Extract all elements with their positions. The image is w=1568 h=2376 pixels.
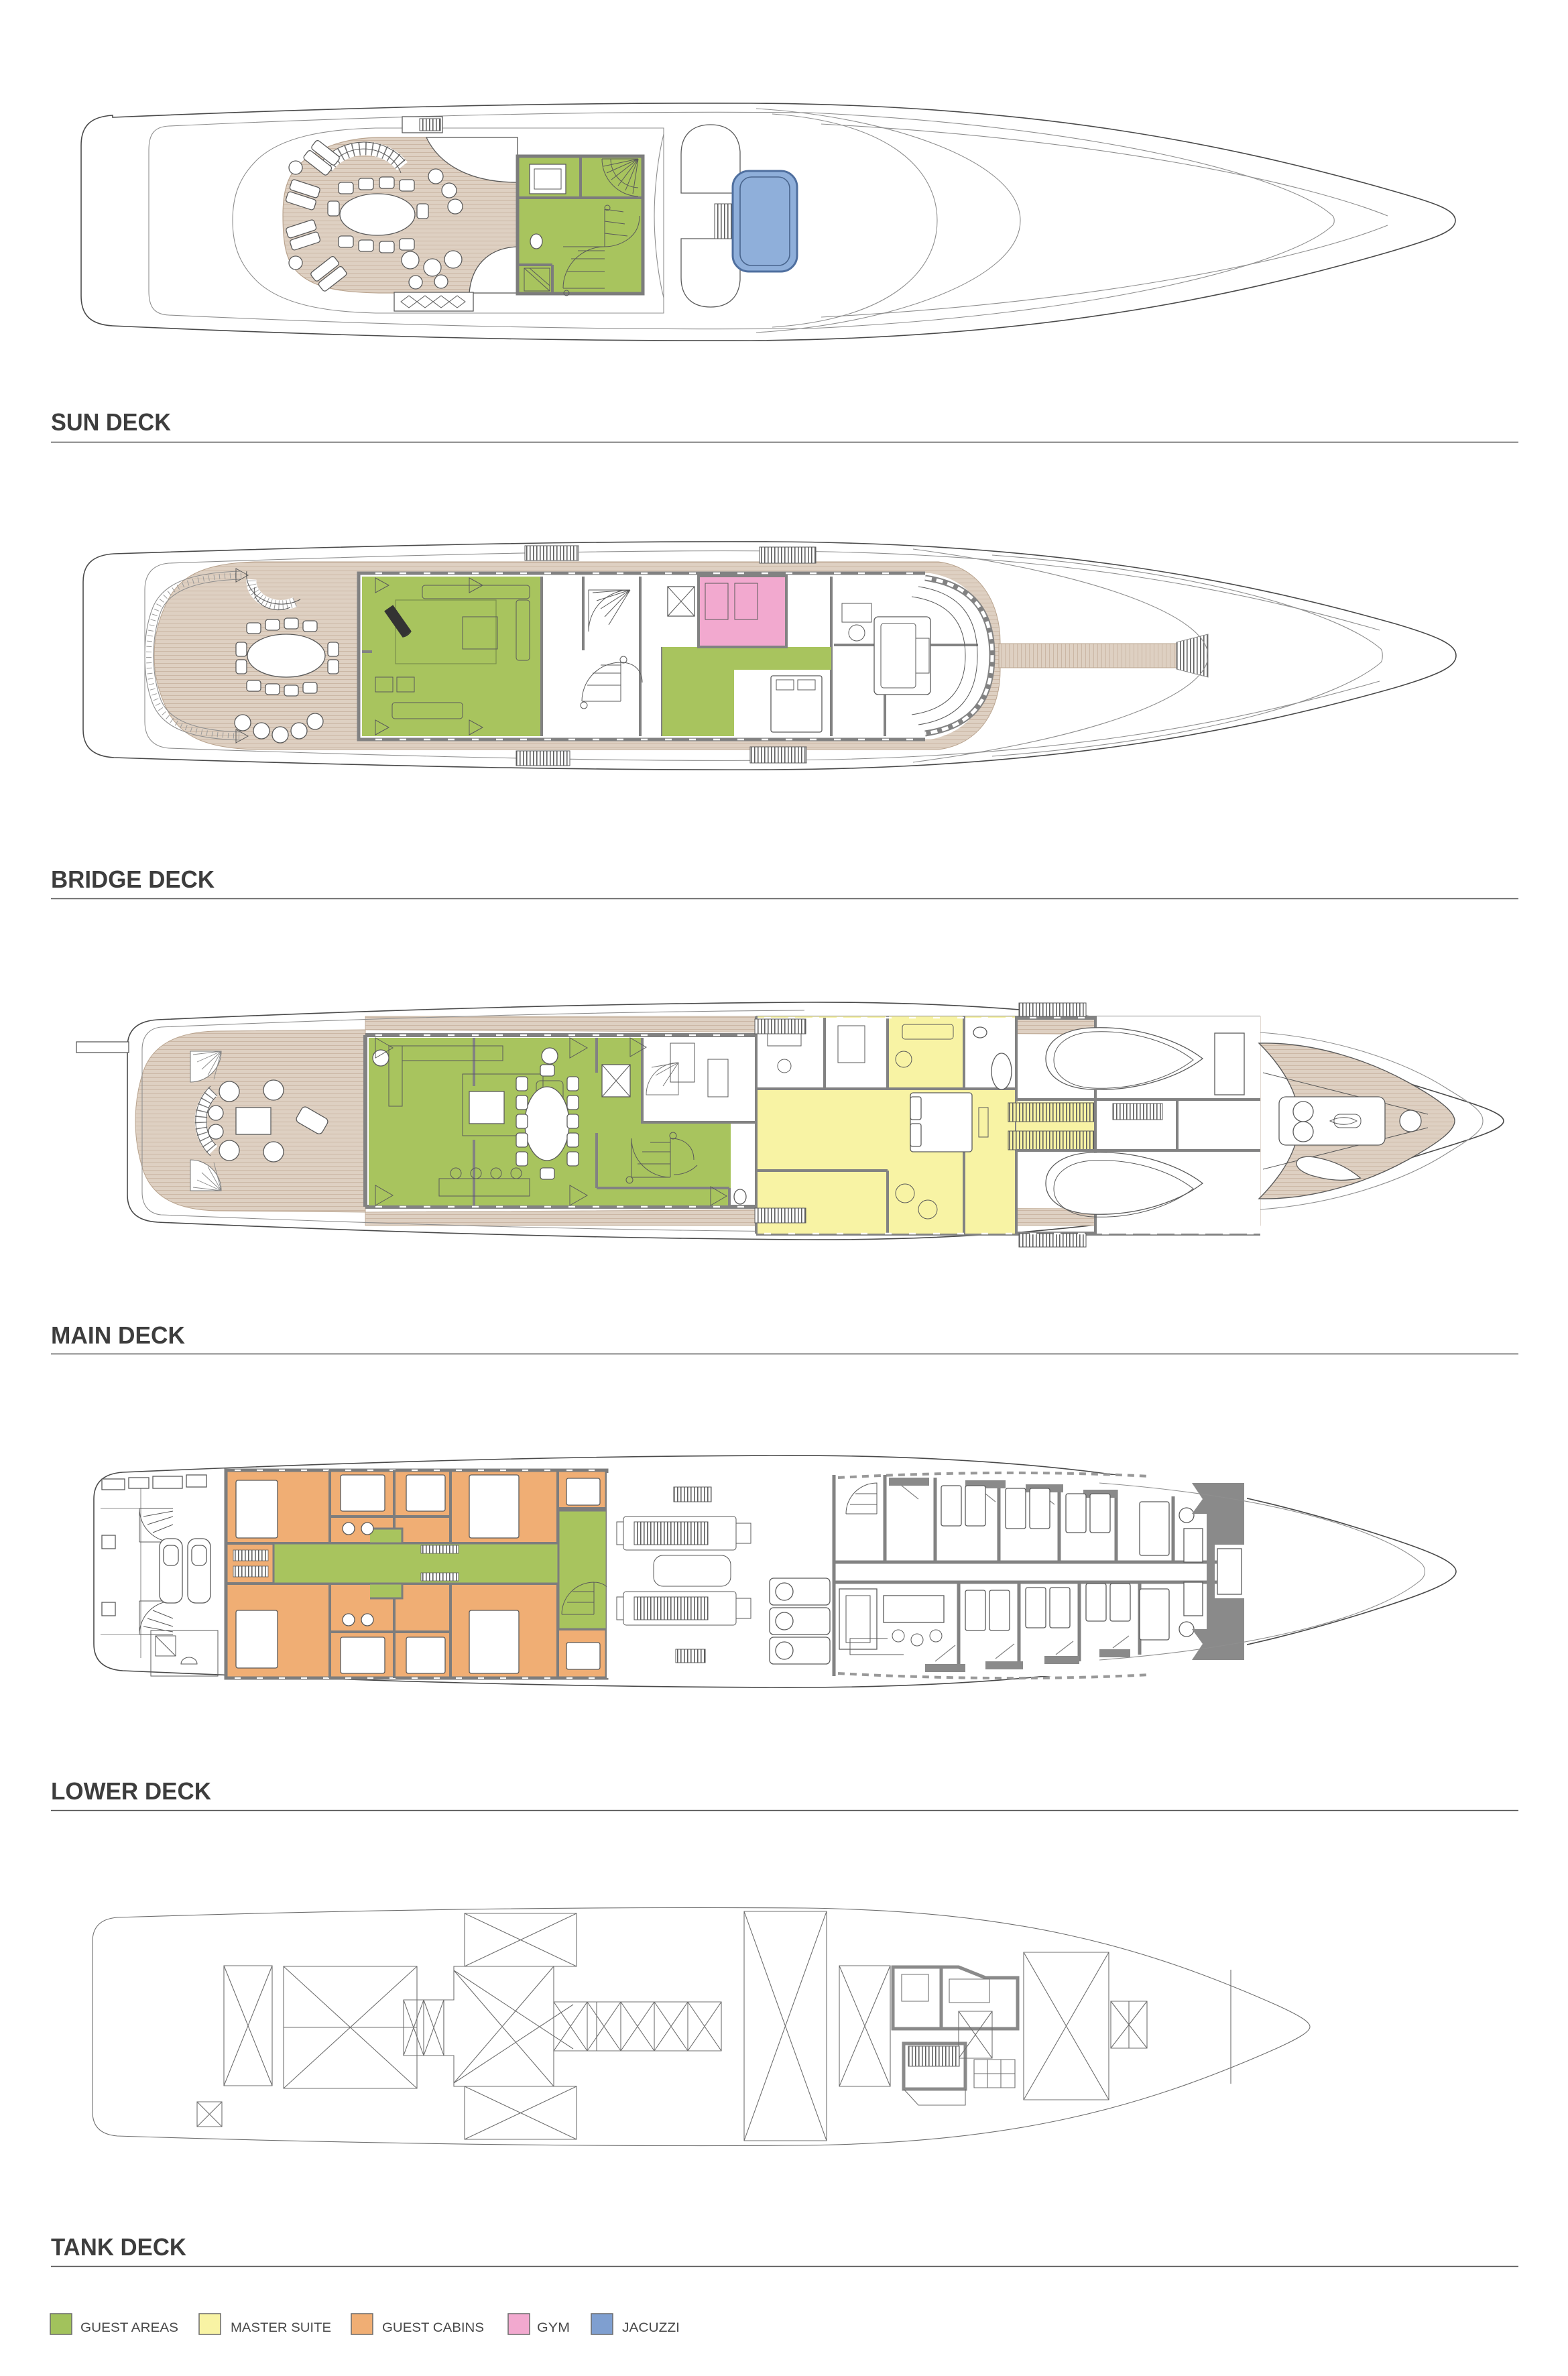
svg-text:TANK DECK: TANK DECK [51,2233,186,2261]
svg-text:SUN DECK: SUN DECK [51,408,171,436]
svg-text:JACUZZI: JACUZZI [622,2321,680,2335]
svg-text:GUEST CABINS: GUEST CABINS [382,2321,484,2335]
svg-text:LOWER DECK: LOWER DECK [51,1777,211,1805]
svg-text:MAIN DECK: MAIN DECK [51,1321,185,1349]
svg-text:GUEST AREAS: GUEST AREAS [80,2321,178,2335]
svg-text:GYM: GYM [537,2321,570,2335]
svg-text:MASTER SUITE: MASTER SUITE [231,2321,331,2335]
svg-text:BRIDGE DECK: BRIDGE DECK [51,866,215,893]
